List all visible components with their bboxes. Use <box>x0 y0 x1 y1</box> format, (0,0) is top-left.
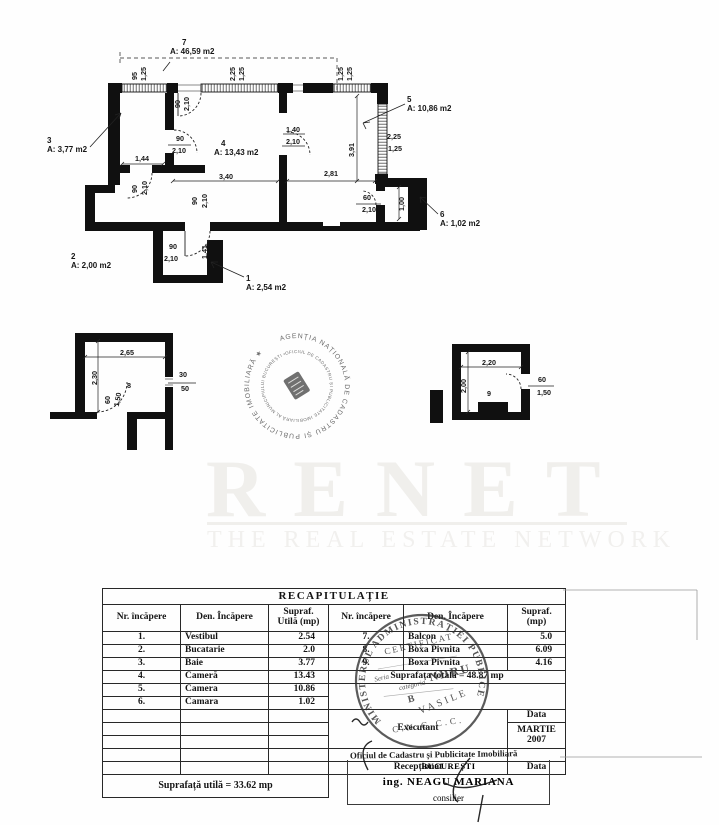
dim-label: 90 <box>190 197 199 205</box>
room-no: 2. <box>103 645 181 658</box>
empty-cell <box>181 736 269 749</box>
dim-label: 2,10 <box>286 137 300 146</box>
room-no: 9. <box>329 658 404 671</box>
empty-cell <box>181 723 269 736</box>
header-area-right: Supraf. (mp) <box>508 605 566 632</box>
room-area: 1.02 <box>269 697 329 710</box>
dim-label: 1,25 <box>336 67 345 81</box>
empty-cell <box>269 736 329 749</box>
dim-label: 2,25 <box>228 67 237 81</box>
leader-lines <box>90 62 438 277</box>
total-left: Suprafață utilă = 33.62 mp <box>103 775 329 798</box>
room-name: Cameră <box>181 671 269 684</box>
dim-label: 2,30 <box>90 371 99 385</box>
dim-label: 1,25 <box>237 67 246 81</box>
dim-label: 1,00 <box>397 197 406 211</box>
dim-label: 60 <box>538 375 546 384</box>
data-label: Data <box>508 710 566 723</box>
empty-cell <box>269 723 329 736</box>
dim-label: 1,25 <box>388 144 402 153</box>
room-area: 3.77 <box>269 658 329 671</box>
dim-label: 1,25 <box>345 67 354 81</box>
dim-label: 2,10 <box>200 194 209 208</box>
dim-label: 3,40 <box>219 172 233 181</box>
room-area: 10.86 <box>269 684 329 697</box>
table-row: 2. Bucatarie 2.0 8. Boxa Pivnita 6.09 <box>103 645 566 658</box>
empty-cell <box>103 762 181 775</box>
room-name: Bucatarie <box>181 645 269 658</box>
cellar-plan-9 <box>430 344 530 423</box>
dim-label: 90 <box>176 134 184 143</box>
dim-label: 1,50 <box>537 388 551 397</box>
dim-label: 2,00 <box>459 379 468 393</box>
dim-label: 2,20 <box>482 358 496 367</box>
empty-cell <box>181 749 269 762</box>
empty-cell <box>103 723 181 736</box>
empty-cell <box>269 710 329 723</box>
window <box>333 84 371 92</box>
cadastre-stamp-outer-text: AGENȚIA NAȚIONALĂ DE CADASTRU ȘI PUBLICI… <box>229 318 366 455</box>
door-leaves <box>178 93 185 256</box>
window <box>378 104 387 174</box>
dim-label: 3,91 <box>347 143 356 157</box>
room-no: 8. <box>329 645 404 658</box>
table-row: 5. Camera 10.86 <box>103 684 566 697</box>
room-no: 4. <box>103 671 181 684</box>
dim-label: 2,65 <box>120 348 134 357</box>
table-row: 4. Cameră 13.43 Suprafața totală = 48.87… <box>103 671 566 684</box>
dimension-lines <box>83 52 554 414</box>
dim-label: A: 1,02 m2 <box>440 219 481 228</box>
dim-label: 1,41 <box>200 245 209 259</box>
dim-label: 30 <box>179 370 187 379</box>
dim-label: 5 <box>407 95 412 104</box>
room-name: Camara <box>181 697 269 710</box>
window <box>201 84 278 92</box>
main-floor-plan <box>85 83 427 283</box>
watermark: RENET THE REAL ESTATE NETWORK <box>206 443 676 553</box>
dim-label: 90 <box>169 242 177 251</box>
dim-label: 2 <box>71 252 76 261</box>
dim-label: 2,25 <box>387 132 401 141</box>
watermark-title: RENET <box>206 443 629 534</box>
empty-cell <box>103 749 181 762</box>
cellar-plan-8 <box>50 333 173 450</box>
dim-label: 1,50 <box>112 392 123 407</box>
dim-label: 1 <box>246 274 251 283</box>
window <box>122 84 167 92</box>
room-name: Boxa Pivnita <box>404 645 508 658</box>
cadastre-stamp-inner-text: OFICIUL DE CADASTRU ȘI PUBLICITATE IMOBI… <box>249 339 344 434</box>
empty-cell <box>269 762 329 775</box>
dim-label: 1,40 <box>286 125 300 134</box>
dim-label: A: 13,43 m2 <box>214 148 259 157</box>
dim-label: 60 <box>103 396 112 404</box>
empty-cell <box>329 684 566 710</box>
dim-label: 6 <box>440 210 445 219</box>
dim-label: 4 <box>221 139 226 148</box>
date-month: MARTIE <box>508 726 565 736</box>
dim-label: 50 <box>181 384 189 393</box>
header-name-left: Den. Încăpere <box>181 605 269 632</box>
room-no: 6. <box>103 697 181 710</box>
empty-cell <box>181 710 269 723</box>
dim-label: 1,44 <box>135 154 149 163</box>
watermark-subtitle: THE REAL ESTATE NETWORK <box>207 527 676 553</box>
room-name: Balcon <box>404 632 508 645</box>
date-year: 2007 <box>508 736 565 746</box>
room-area: 2.0 <box>269 645 329 658</box>
room-area: 13.43 <box>269 671 329 684</box>
engineer-name: ing. NEAGU MARIANA <box>383 776 514 788</box>
dim-label: 9 <box>487 389 491 398</box>
table-title: RECAPITULAȚIE <box>103 589 566 605</box>
svg-text:AGENȚIA NAȚIONALĂ DE CADASTRU: AGENȚIA NAȚIONALĂ DE CADASTRU ȘI PUBLICI… <box>229 318 366 455</box>
room-no: 1. <box>103 632 181 645</box>
dim-label: 60 <box>363 193 371 202</box>
signature-box: BUCUREȘTI ing. NEAGU MARIANA consilier <box>347 760 550 805</box>
empty-cell <box>269 749 329 762</box>
cadastre-stamp-emblem <box>283 371 310 400</box>
dim-label: 2,10 <box>172 146 186 155</box>
room-no: 7. <box>329 632 404 645</box>
dim-label: 90 <box>130 185 139 193</box>
dim-label: A: 2,54 m2 <box>246 283 287 292</box>
dim-label: 2,10 <box>140 181 149 195</box>
dim-label: 7 <box>182 38 187 47</box>
header-no-left: Nr. încăpere <box>103 605 181 632</box>
office-city: BUCUREȘTI <box>421 761 475 771</box>
header-area-right-line2: (mp) <box>508 618 565 628</box>
dim-label: 2,10 <box>164 254 178 263</box>
room-name: Baie <box>181 658 269 671</box>
dim-label: 1,25 <box>139 67 148 81</box>
empty-cell <box>103 710 181 723</box>
executant-cell: Executant <box>329 710 508 749</box>
threshold-lines <box>178 85 303 91</box>
room-area: 2.54 <box>269 632 329 645</box>
empty-cell <box>181 762 269 775</box>
dim-label: A: 10,86 m2 <box>407 104 452 113</box>
room-area: 6.09 <box>508 645 566 658</box>
scanned-cadastral-document: RECAPITULAȚIE Nr. încăpere Den. Încăpere… <box>0 0 719 825</box>
room-no: 3. <box>103 658 181 671</box>
table-row: 1. Vestibul 2.54 7. Balcon 5.0 <box>103 632 566 645</box>
dim-label: 2,10 <box>182 97 191 111</box>
dim-label: 2,10 <box>362 205 376 214</box>
room-name: Boxa Pivnita <box>404 658 508 671</box>
empty-cell <box>103 736 181 749</box>
dim-label: 2,81 <box>324 169 338 178</box>
header-no-right: Nr. încăpere <box>329 605 404 632</box>
dim-label: A: 3,77 m2 <box>47 145 88 154</box>
dim-label: A: 46,59 m2 <box>170 47 215 56</box>
table-row: Executant Data <box>103 710 566 723</box>
room-name: Camera <box>181 684 269 697</box>
table-row: 3. Baie 3.77 9. Boxa Pivnita 4.16 <box>103 658 566 671</box>
engineer-title: consilier <box>433 793 464 803</box>
door-arcs <box>97 93 521 412</box>
dim-label: 8 <box>127 381 131 390</box>
dim-label: 95 <box>130 72 139 80</box>
header-area-left-line2: Utilă (mp) <box>269 618 328 628</box>
room-name: Vestibul <box>181 632 269 645</box>
room-area: 4.16 <box>508 658 566 671</box>
watermark-rule <box>207 522 627 525</box>
header-area-left: Supraf. Utilă (mp) <box>269 605 329 632</box>
cadastre-stamp: AGENȚIA NAȚIONALĂ DE CADASTRU ȘI PUBLICI… <box>229 318 366 455</box>
room-area: 5.0 <box>508 632 566 645</box>
dim-labels: 7A: 46,59 m2951,252,251,251,251,25902,10… <box>47 38 551 407</box>
svg-text:OFICIUL DE CADASTRU ȘI PUBLICI: OFICIUL DE CADASTRU ȘI PUBLICITATE IMOBI… <box>249 339 344 434</box>
dim-label: A: 2,00 m2 <box>71 261 112 270</box>
header-name-right: Den. Încăpere <box>404 605 508 632</box>
scan-artifacts <box>560 590 702 757</box>
dim-label: 90 <box>173 100 182 108</box>
dim-label: 3 <box>47 136 52 145</box>
total-right: Suprafața totală = 48.87 mp <box>329 671 566 684</box>
date-value-cell: MARTIE 2007 <box>508 723 566 749</box>
room-no: 5. <box>103 684 181 697</box>
